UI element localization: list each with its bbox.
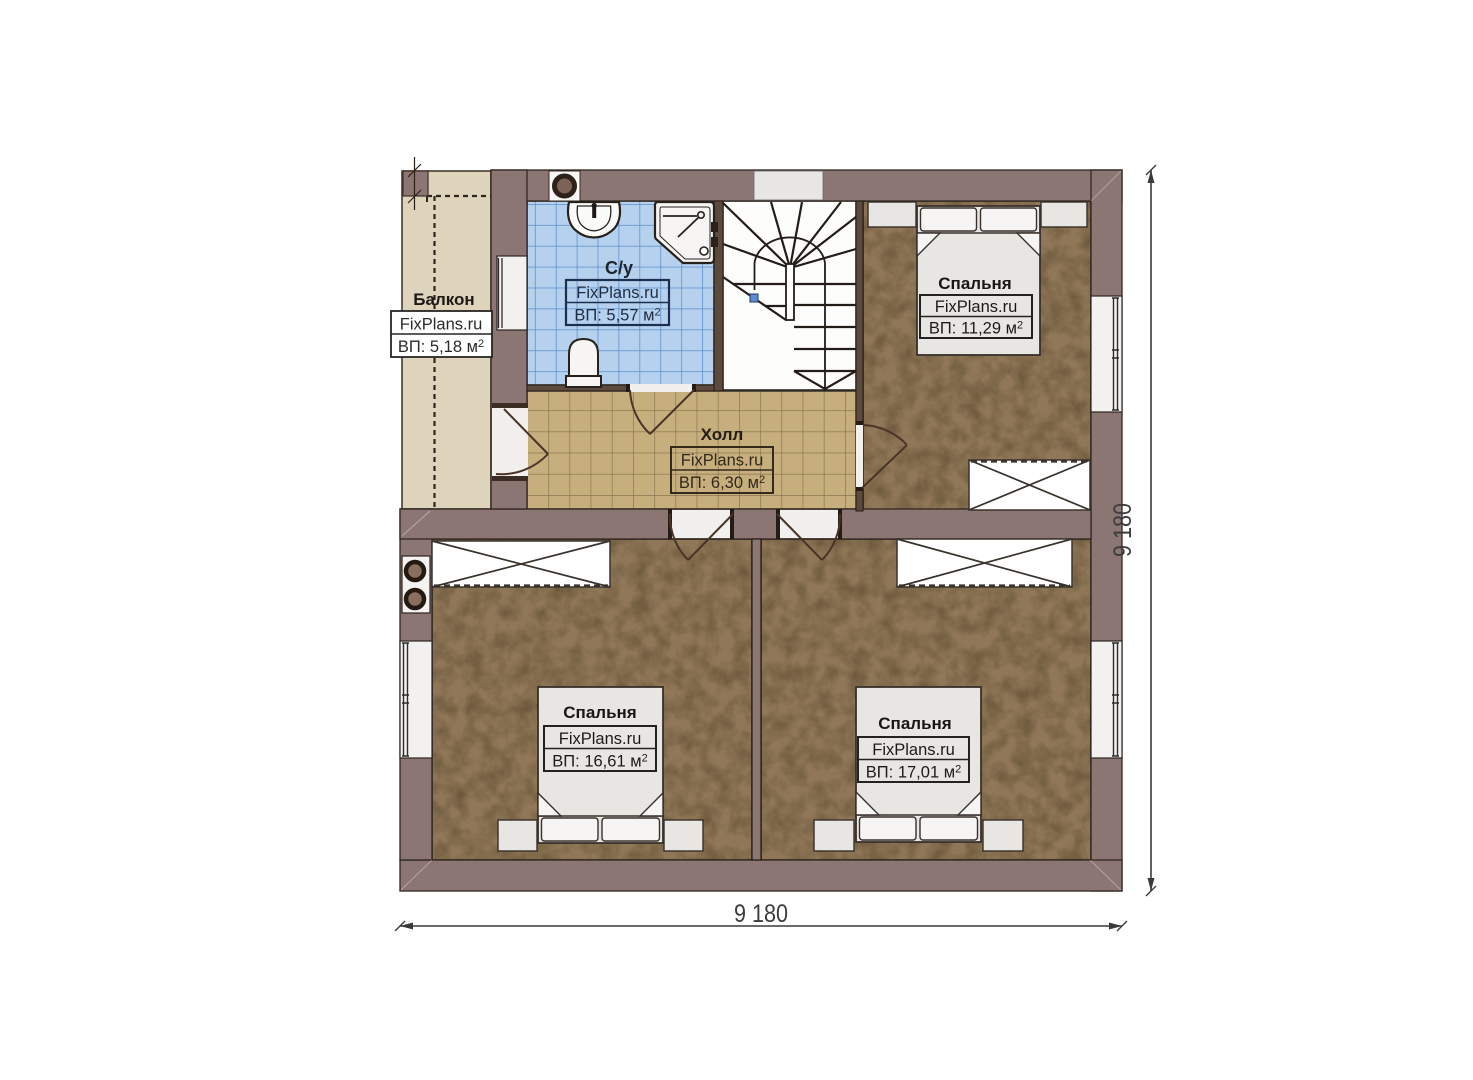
svg-text:FixPlans.ru: FixPlans.ru bbox=[872, 741, 955, 759]
svg-text:Холл: Холл bbox=[701, 425, 744, 444]
svg-text:ВП: 17,01 м2: ВП: 17,01 м2 bbox=[866, 764, 961, 782]
svg-text:Спальня: Спальня bbox=[563, 703, 636, 722]
svg-text:ВП: 11,29 м2: ВП: 11,29 м2 bbox=[929, 320, 1023, 338]
svg-text:9 180: 9 180 bbox=[734, 900, 788, 928]
svg-text:9 180: 9 180 bbox=[1109, 503, 1137, 557]
svg-text:FixPlans.ru: FixPlans.ru bbox=[576, 284, 659, 302]
svg-text:FixPlans.ru: FixPlans.ru bbox=[935, 298, 1018, 316]
svg-text:Балкон: Балкон bbox=[413, 290, 474, 309]
svg-text:ВП: 5,18 м2: ВП: 5,18 м2 bbox=[398, 338, 484, 356]
svg-text:FixPlans.ru: FixPlans.ru bbox=[559, 730, 642, 748]
svg-text:ВП: 5,57 м2: ВП: 5,57 м2 bbox=[574, 307, 660, 325]
svg-text:Спальня: Спальня bbox=[878, 714, 951, 733]
svg-text:FixPlans.ru: FixPlans.ru bbox=[681, 452, 764, 470]
svg-text:ВП: 16,61 м2: ВП: 16,61 м2 bbox=[552, 753, 647, 771]
svg-text:Спальня: Спальня bbox=[938, 274, 1011, 293]
svg-text:FixPlans.ru: FixPlans.ru bbox=[400, 316, 483, 334]
svg-text:ВП: 6,30 м2: ВП: 6,30 м2 bbox=[679, 474, 765, 492]
svg-text:С/у: С/у bbox=[605, 258, 633, 278]
